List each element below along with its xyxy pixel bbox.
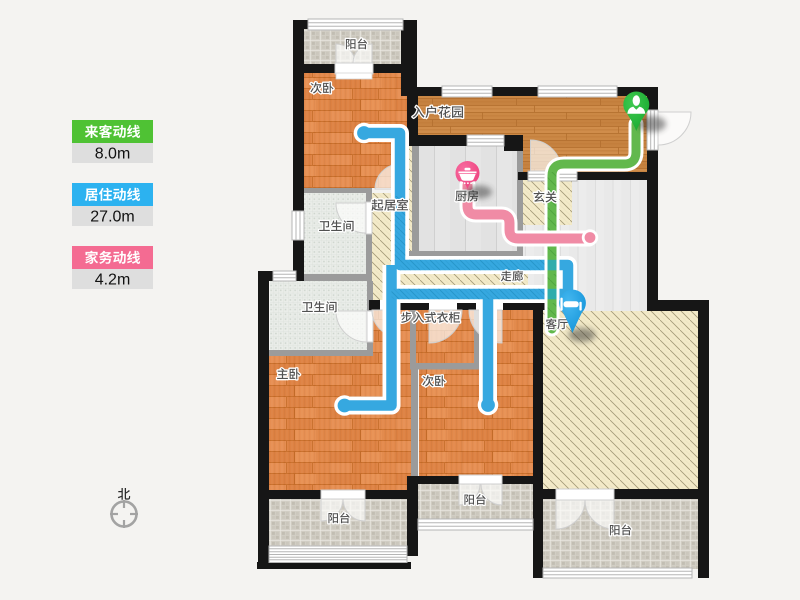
- svg-text:8.0m: 8.0m: [95, 146, 131, 163]
- svg-text:27.0m: 27.0m: [90, 209, 134, 226]
- svg-text:4.2m: 4.2m: [95, 272, 131, 289]
